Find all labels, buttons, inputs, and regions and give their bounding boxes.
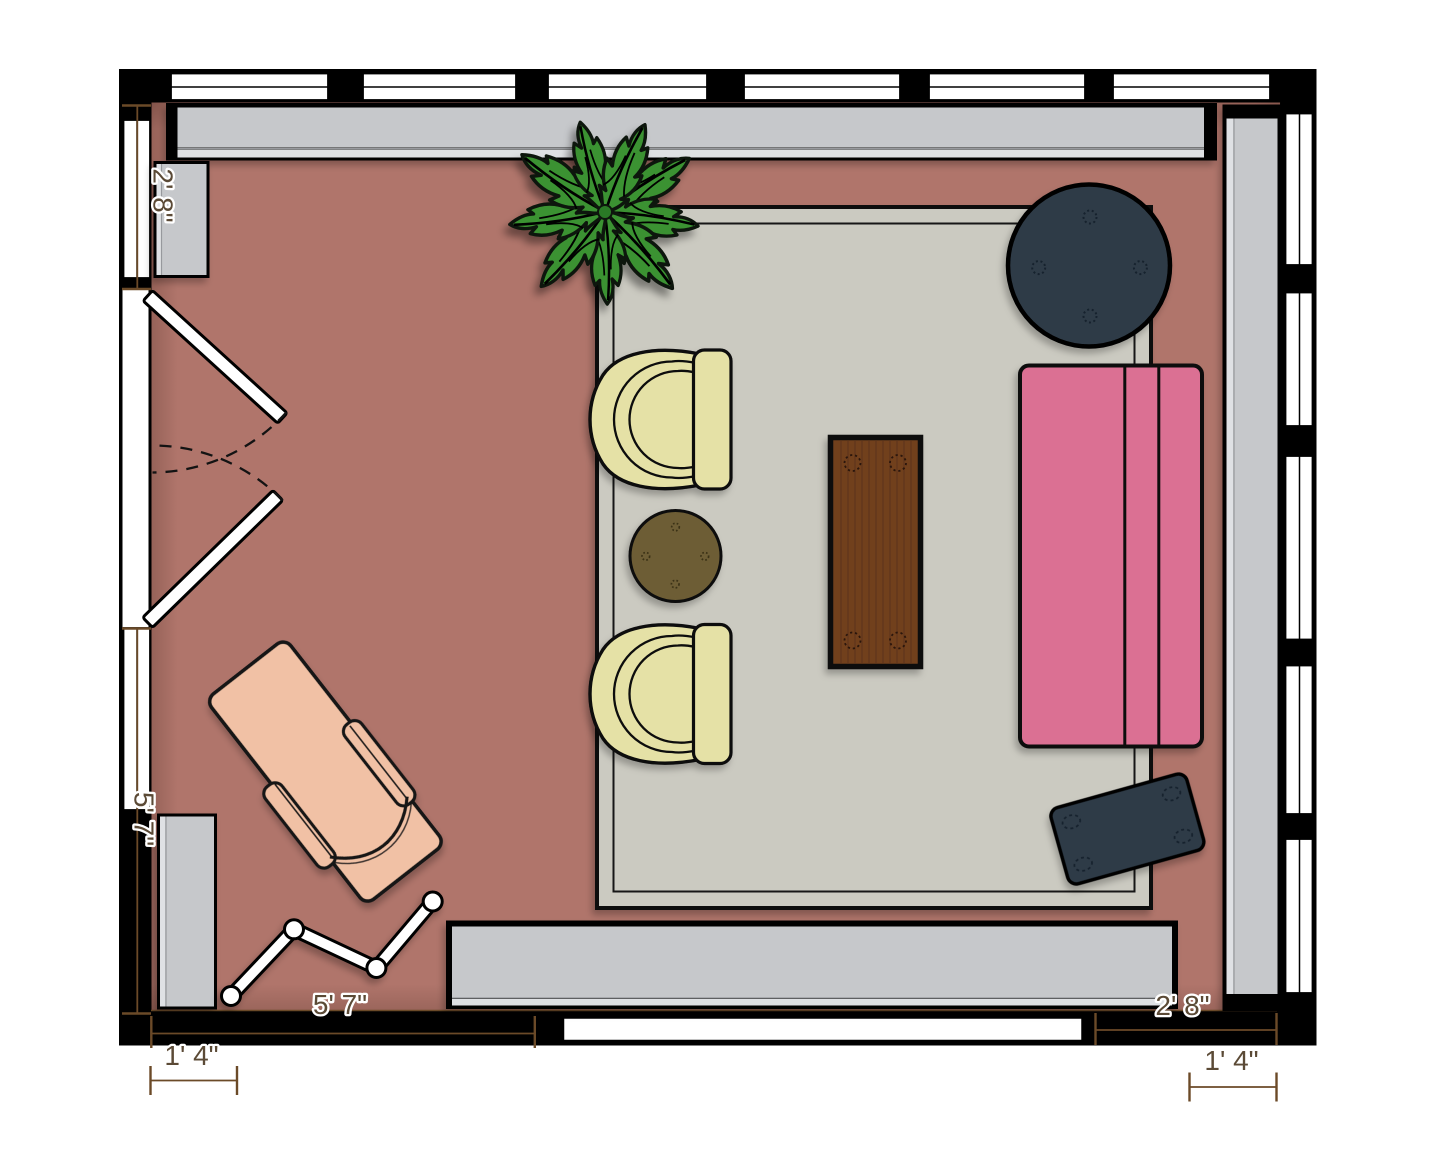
svg-text:2' 8": 2' 8" [1155, 990, 1209, 1021]
svg-text:1' 4": 1' 4" [164, 1040, 218, 1071]
svg-text:5' 7": 5' 7" [129, 792, 160, 846]
svg-text:2' 8": 2' 8" [148, 168, 179, 222]
svg-text:1' 4": 1' 4" [1204, 1045, 1258, 1076]
svg-text:5' 7": 5' 7" [313, 989, 367, 1020]
